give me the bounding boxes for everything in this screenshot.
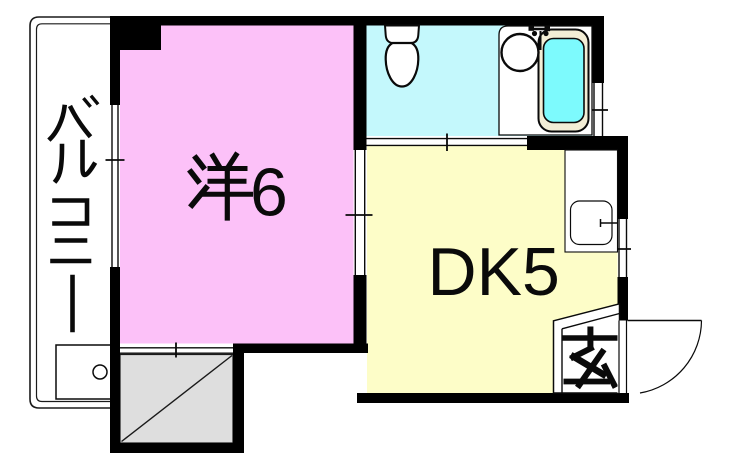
svg-text:DK5: DK5: [428, 234, 560, 310]
svg-text:6: 6: [250, 155, 288, 231]
